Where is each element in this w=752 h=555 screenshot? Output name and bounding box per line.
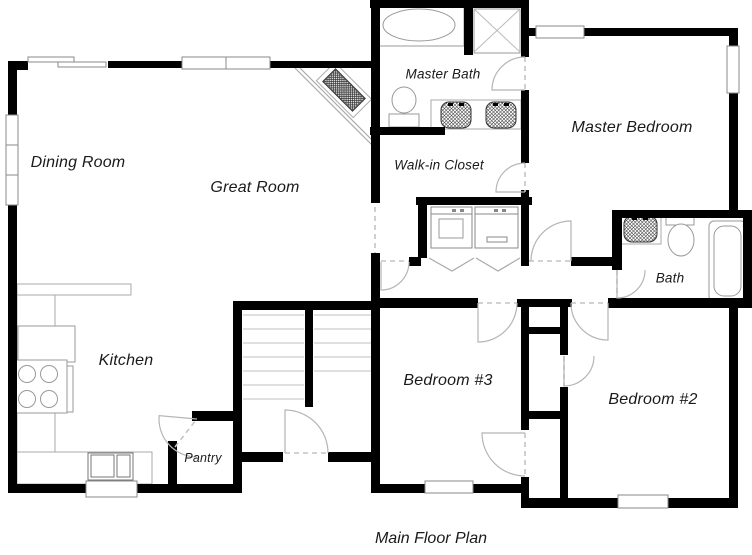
room-label-master-bath: Master Bath: [406, 67, 481, 82]
master-toilet-icon: [389, 87, 419, 127]
hall-door-icon: [381, 262, 409, 290]
room-label-kitchen: Kitchen: [99, 352, 154, 370]
master-bedroom-window-icon: [536, 26, 584, 38]
bath-door-icon: [617, 270, 645, 298]
bedroom2-window-icon: [618, 495, 668, 508]
room-label-dining-room: Dining Room: [31, 154, 126, 172]
room-label-walk-in-closet: Walk-in Closet: [394, 158, 484, 173]
garden-tub-icon: [375, 4, 464, 46]
dining-window-icon: [6, 115, 18, 205]
great-room-window-icon: [182, 57, 270, 69]
bedroom2-door-icon: [571, 303, 608, 340]
bathtub-icon: [709, 221, 746, 301]
bedroom3-door-icon: [478, 303, 517, 342]
shower-icon: [474, 9, 520, 53]
room-label-master-bedroom: Master Bedroom: [571, 119, 692, 137]
master-bedroom-side-window-icon: [727, 46, 739, 93]
dryer-icon: [475, 207, 518, 248]
double-vanity-icon: [431, 100, 521, 129]
room-label-bedroom-2: Bedroom #2: [608, 391, 697, 409]
floor-plan-drawing: [0, 0, 752, 555]
washer-icon: [431, 207, 472, 248]
master-bedroom-door-icon: [531, 221, 571, 261]
room-label-pantry: Pantry: [184, 451, 221, 465]
bath-toilet-icon: [666, 214, 694, 256]
bedroom3-closet-door-icon: [482, 433, 525, 476]
room-label-great-room: Great Room: [210, 179, 299, 197]
walls: [8, 0, 752, 508]
refrigerator-icon: [18, 326, 75, 362]
kitchen-window-icon: [86, 481, 137, 497]
master-bath-door-icon: [492, 57, 525, 90]
walk-in-closet-door-icon: [496, 163, 525, 192]
bedroom2-closet-door-icon: [564, 356, 594, 386]
kitchen-sink-icon: [88, 453, 133, 480]
bedroom3-window-icon: [425, 481, 473, 493]
fireplace-icon: [295, 62, 372, 145]
front-door-icon: [285, 410, 328, 453]
floor-plan: Dining Room Great Room Master Bath Walk-…: [0, 0, 752, 555]
stove-icon: [13, 360, 73, 413]
room-label-bath: Bath: [656, 271, 685, 286]
sliding-door-icon: [28, 57, 106, 67]
plan-caption: Main Floor Plan: [375, 530, 487, 548]
room-label-bedroom-3: Bedroom #3: [403, 372, 492, 390]
laundry-bifold-doors-icon: [429, 258, 520, 271]
